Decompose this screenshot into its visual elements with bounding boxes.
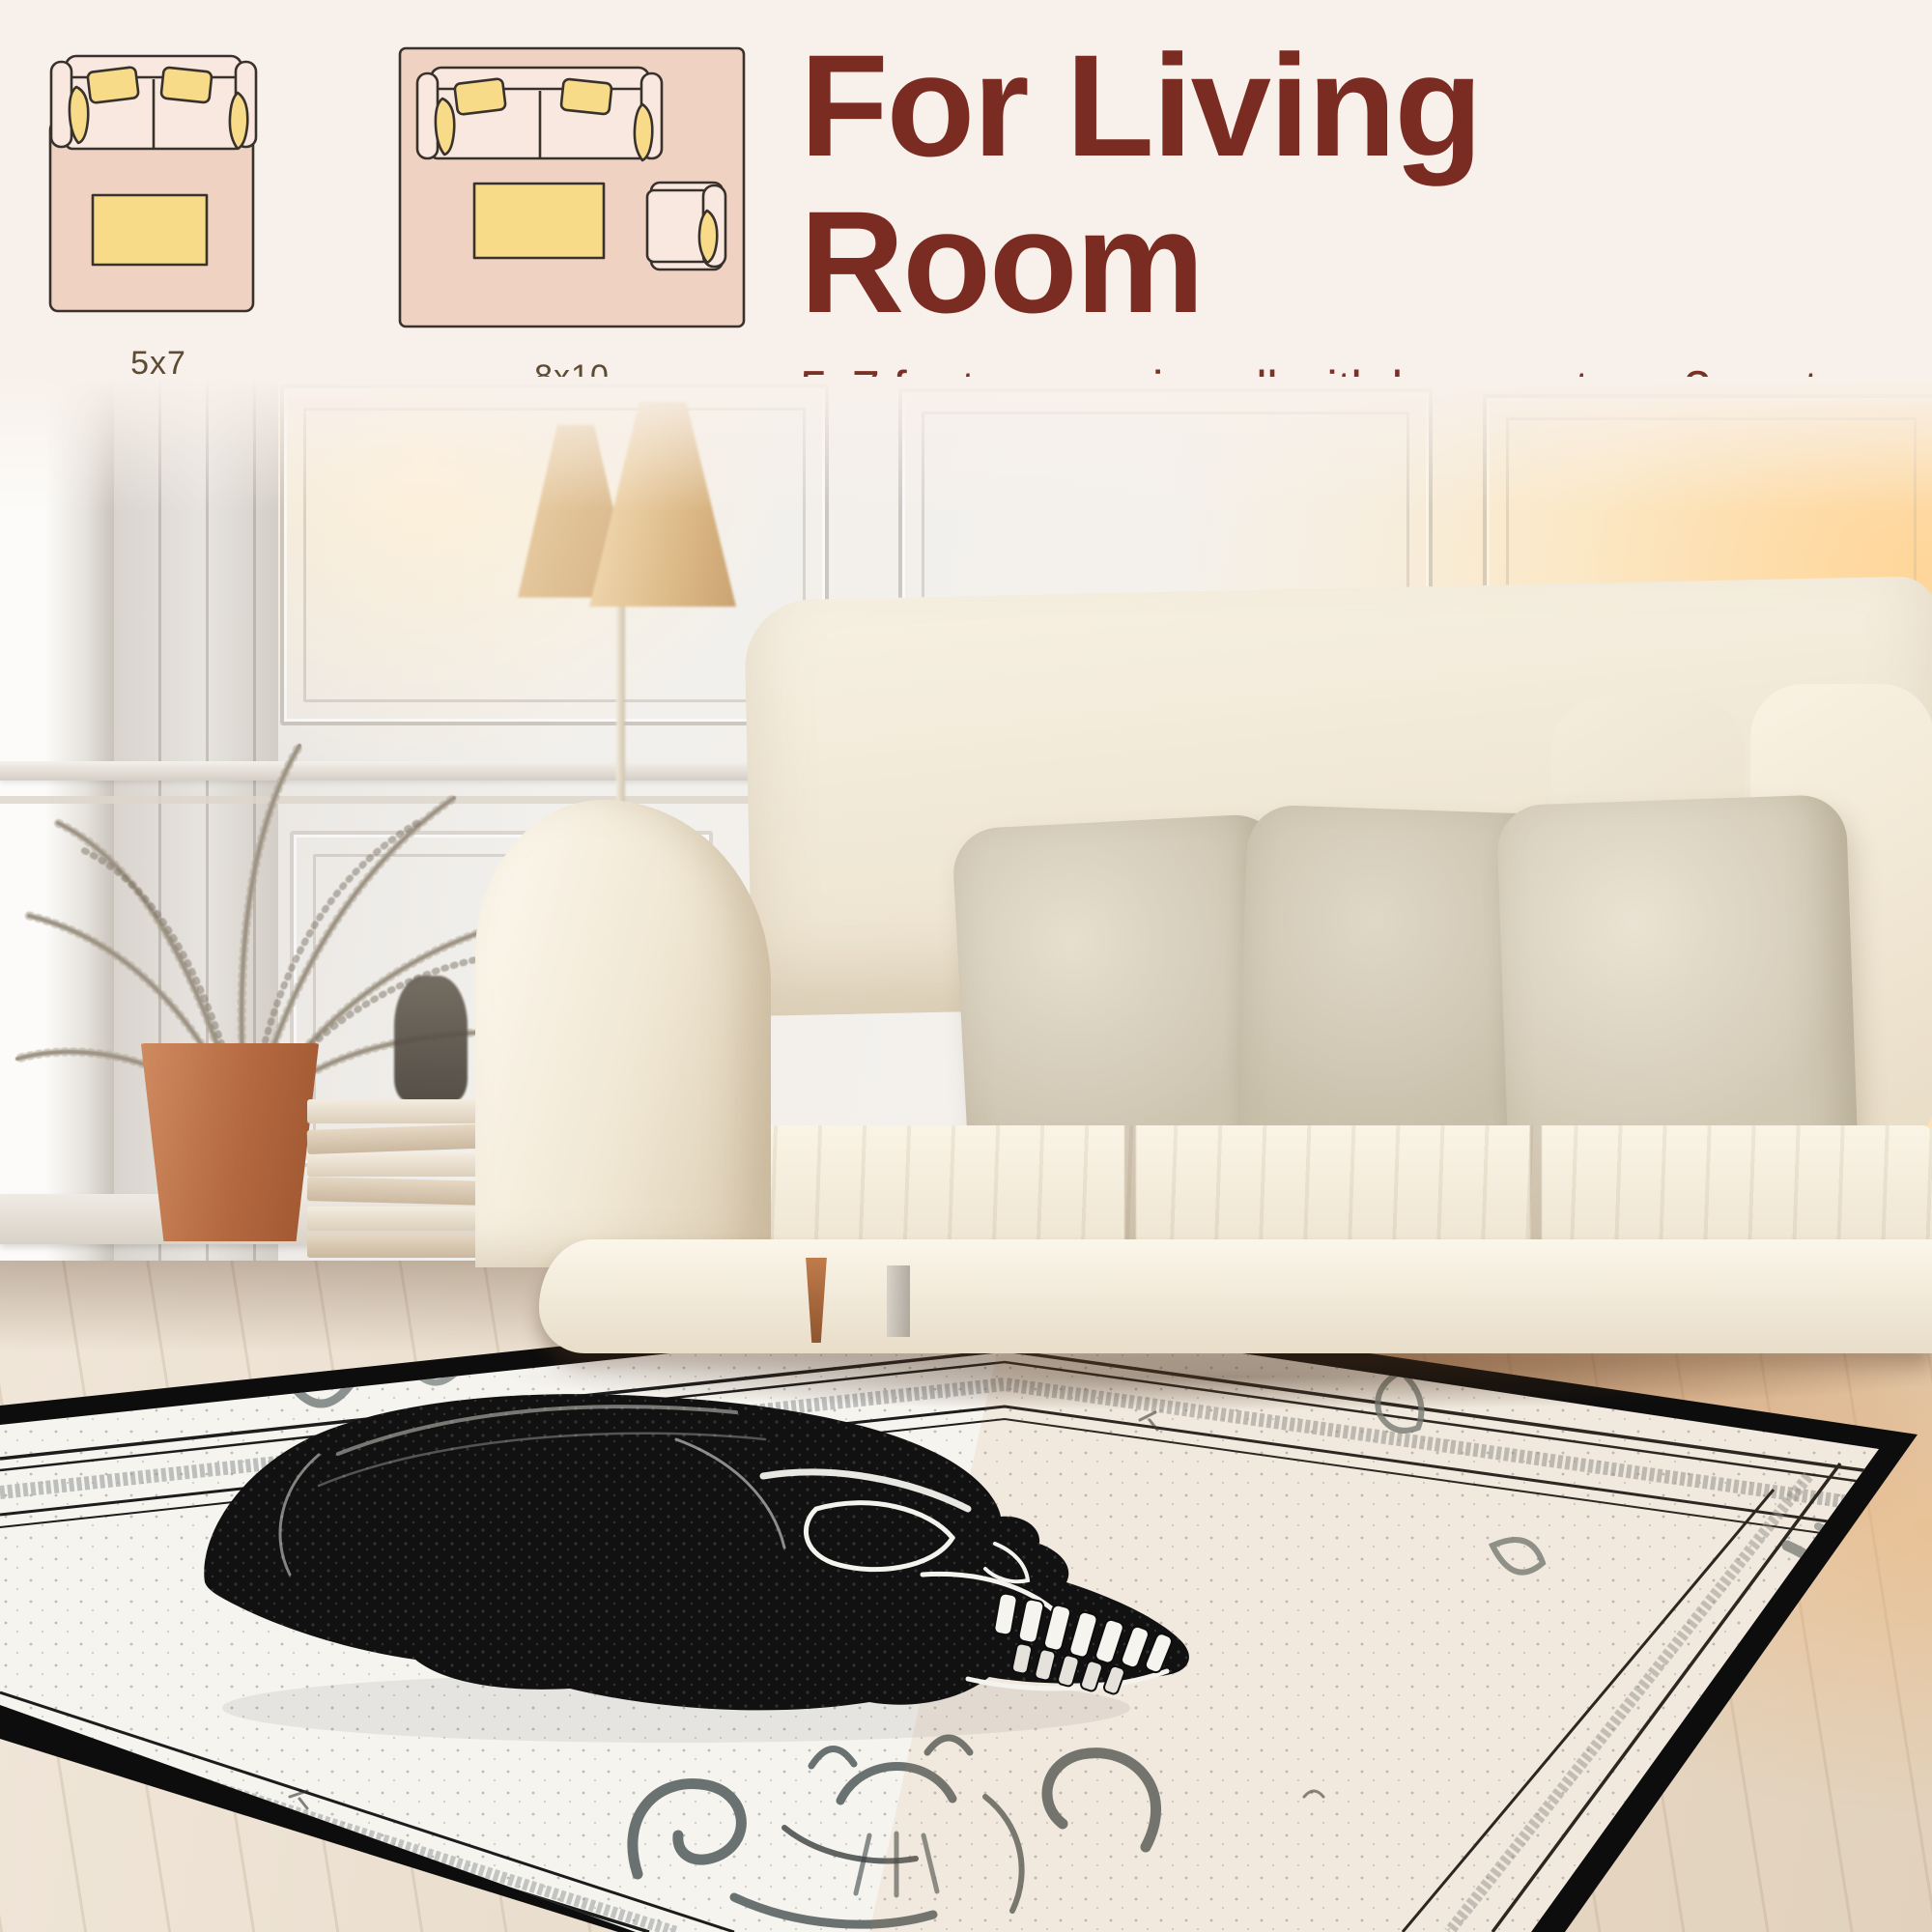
photo-top-fade: [0, 377, 1932, 512]
lamp-pole: [616, 605, 625, 1020]
skull-area-rug: [0, 1256, 1932, 1932]
rug-layout-8x10-illustration: [388, 41, 755, 342]
diagram-coffee-table: [474, 184, 604, 258]
terracotta-pot: [135, 1043, 325, 1241]
small-sculpture: [394, 976, 468, 1101]
size-diagram-8x10: 8x10: [388, 41, 755, 396]
living-room-photo: [0, 377, 1932, 1932]
diagram-pillow: [699, 211, 717, 263]
diagram-coffee-table: [93, 195, 207, 265]
size-diagram-5x7: 5x7: [46, 48, 270, 383]
diagram-sofa: [51, 56, 256, 149]
product-infographic: 5x7: [0, 0, 1932, 1932]
diagram-armchair: [647, 183, 725, 270]
page-title: For Living Room: [800, 27, 1920, 340]
book-stack: [307, 1099, 527, 1258]
diagram-sofa: [417, 68, 662, 160]
rug-layout-5x7-illustration: [46, 48, 270, 328]
